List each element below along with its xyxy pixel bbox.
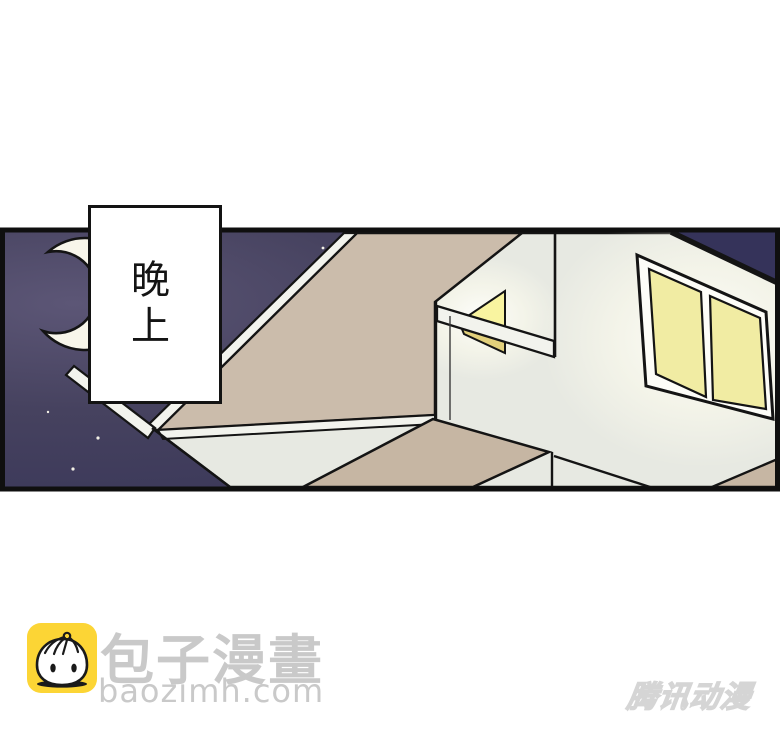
comic-page: 晚上 包子漫畫 baozimh.com 腾讯动漫 (0, 0, 780, 730)
caption-text: 晚上 (128, 259, 167, 351)
star-icon (96, 436, 99, 439)
tencent-watermark: 腾讯动漫 (625, 672, 780, 716)
star-icon (47, 411, 49, 413)
bun-body (37, 639, 87, 685)
caption-box: 晚上 (88, 205, 222, 404)
star-icon (322, 247, 325, 250)
star-icon (71, 467, 74, 470)
site-url: baozimh.com (98, 672, 324, 710)
baozi-logo-icon (27, 623, 97, 693)
